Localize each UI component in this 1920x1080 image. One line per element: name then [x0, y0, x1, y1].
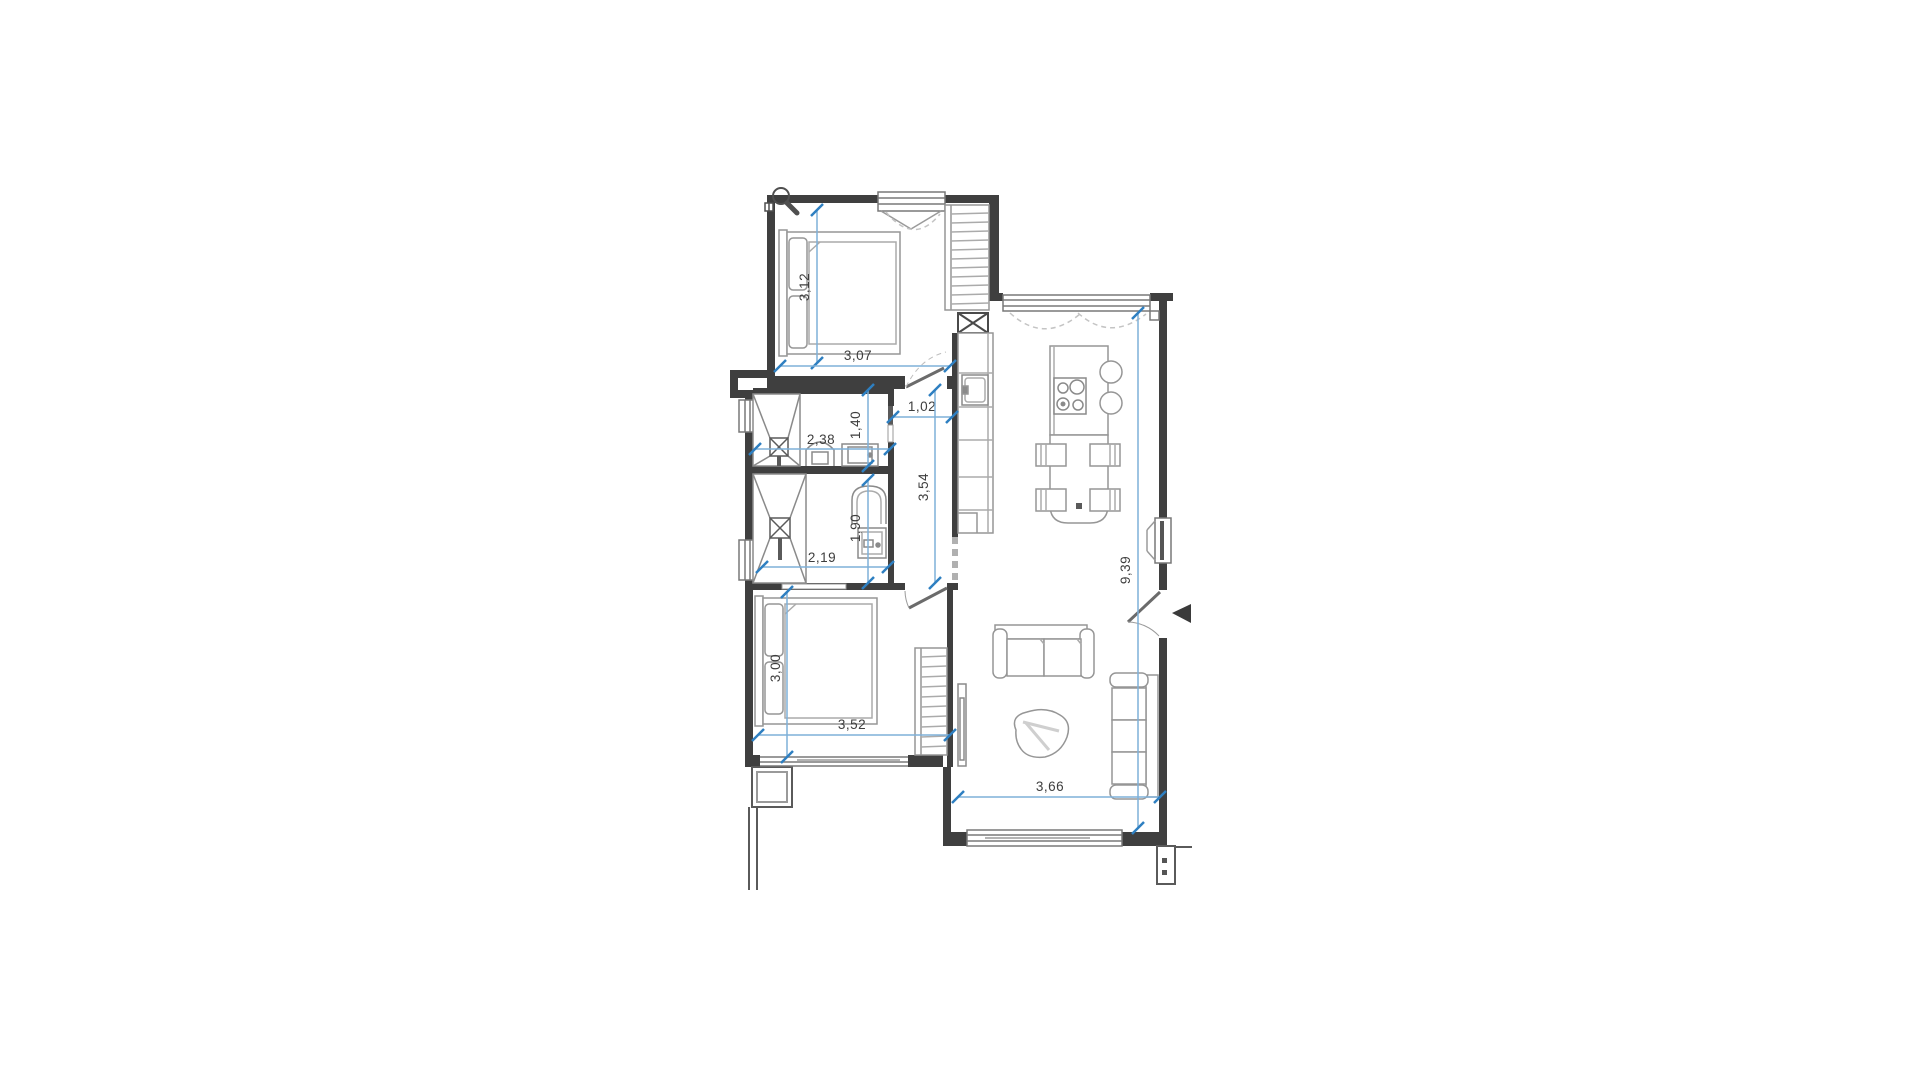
svg-text:3,66: 3,66 — [1036, 779, 1064, 794]
bar-stool — [1100, 392, 1122, 414]
dining-set — [1036, 435, 1120, 523]
window — [1147, 518, 1171, 563]
wall-cut-lines — [749, 767, 792, 890]
living-room — [958, 625, 1158, 799]
sofa-three-seat — [1110, 673, 1158, 799]
svg-text:3,54: 3,54 — [916, 473, 931, 501]
svg-text:2,19: 2,19 — [808, 550, 836, 565]
kitchen-island — [1050, 346, 1122, 435]
floor-plan-drawing: 3,12 3,07 2,38 1,40 1,02 — [0, 0, 1920, 1080]
svg-text:3,07: 3,07 — [844, 348, 872, 363]
door-swing — [906, 352, 946, 387]
bar-stool — [1100, 361, 1122, 383]
kitchen-counter — [958, 333, 993, 533]
svg-text:3,00: 3,00 — [768, 654, 783, 682]
entry-arrow-icon — [1172, 604, 1191, 623]
floor-plan-canvas: 3,12 3,07 2,38 1,40 1,02 — [0, 0, 1920, 1080]
pocket-door — [888, 406, 893, 442]
wall-stub — [1157, 846, 1192, 884]
svg-text:2,38: 2,38 — [807, 432, 835, 447]
svg-text:1,02: 1,02 — [908, 399, 936, 414]
window — [1003, 295, 1159, 329]
walk-in-shower — [753, 394, 800, 466]
door-swing — [905, 588, 947, 608]
svg-text:3,12: 3,12 — [797, 273, 812, 301]
vent-shaft — [958, 313, 988, 333]
wardrobe — [945, 205, 989, 310]
hob — [1054, 378, 1086, 414]
window — [878, 192, 945, 230]
kitchen — [958, 333, 1122, 533]
dimension-corridor-width: 1,02 — [887, 399, 958, 423]
svg-text:3,52: 3,52 — [838, 717, 866, 732]
sofa-two-seat — [993, 625, 1094, 678]
window — [967, 830, 1122, 846]
dimension-corridor-length: 3,54 — [916, 384, 941, 589]
wardrobe — [915, 648, 947, 755]
svg-text:1,90: 1,90 — [848, 514, 863, 542]
kitchen-sink — [962, 375, 988, 405]
entry-door — [1128, 592, 1160, 636]
coffee-table — [1014, 710, 1068, 758]
svg-text:1,40: 1,40 — [848, 411, 863, 439]
svg-text:9,39: 9,39 — [1118, 556, 1133, 584]
tv-panel — [958, 684, 966, 766]
